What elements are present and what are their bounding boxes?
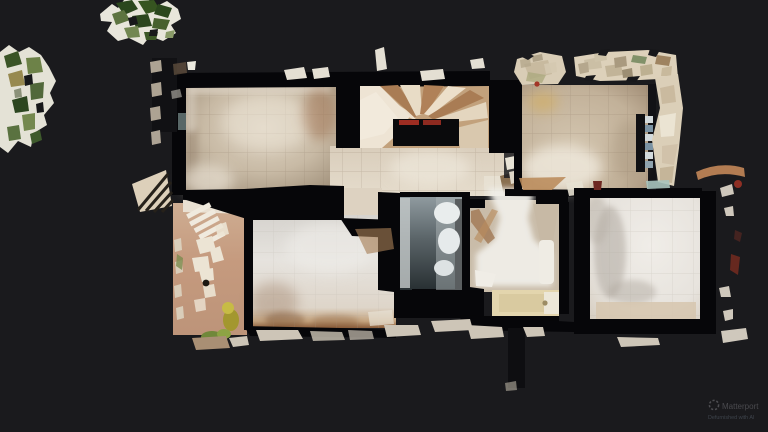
svg-text:Matterport: Matterport bbox=[722, 402, 759, 411]
svg-text:Defurnished with AI: Defurnished with AI bbox=[708, 415, 754, 421]
